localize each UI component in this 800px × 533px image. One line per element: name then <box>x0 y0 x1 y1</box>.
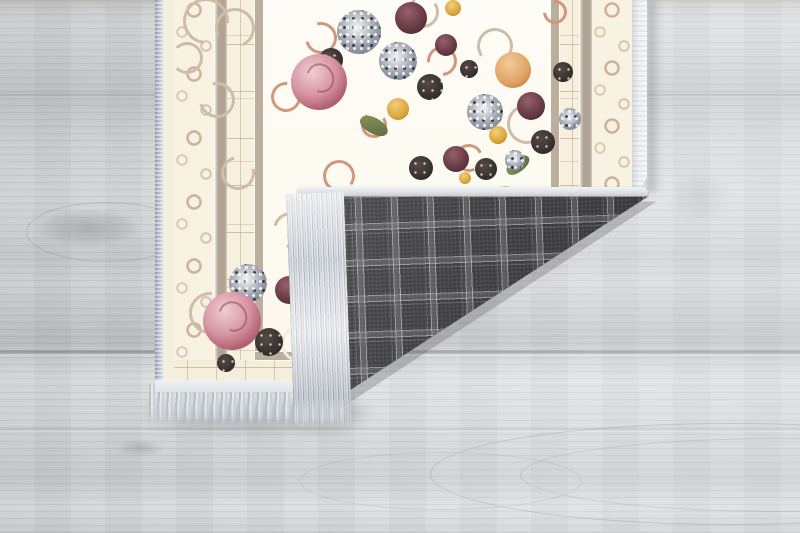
corner-scroll-ornament <box>171 42 203 74</box>
plum-flower <box>517 92 545 120</box>
rug-shadow <box>647 0 662 192</box>
dark-foliage <box>475 158 497 180</box>
plum-flower <box>435 34 457 56</box>
pink-rose <box>291 54 347 110</box>
hydrangea-cluster <box>467 94 503 130</box>
scene <box>0 0 800 533</box>
dark-foliage <box>553 62 573 82</box>
yellow-flower <box>459 172 471 184</box>
dark-foliage <box>217 354 235 372</box>
pink-rose <box>203 292 261 350</box>
dark-foliage <box>409 156 433 180</box>
yellow-flower <box>445 0 461 16</box>
hydrangea-cluster <box>505 150 525 170</box>
dark-foliage <box>417 74 443 100</box>
flap-fringe <box>286 192 352 432</box>
plum-flower <box>395 2 427 34</box>
hydrangea-cluster <box>379 42 417 80</box>
green-leaf <box>357 111 391 141</box>
hydrangea-cluster <box>559 108 581 130</box>
rug-left-selvedge <box>155 0 163 392</box>
orange-rose <box>495 52 531 88</box>
floral-bouquet <box>403 140 543 192</box>
dark-foliage <box>255 328 283 356</box>
fold-crease <box>298 187 648 198</box>
yellow-flower <box>387 98 409 120</box>
wood-grain-arc <box>300 452 582 510</box>
plum-flower <box>443 146 469 172</box>
hydrangea-cluster <box>337 10 381 54</box>
